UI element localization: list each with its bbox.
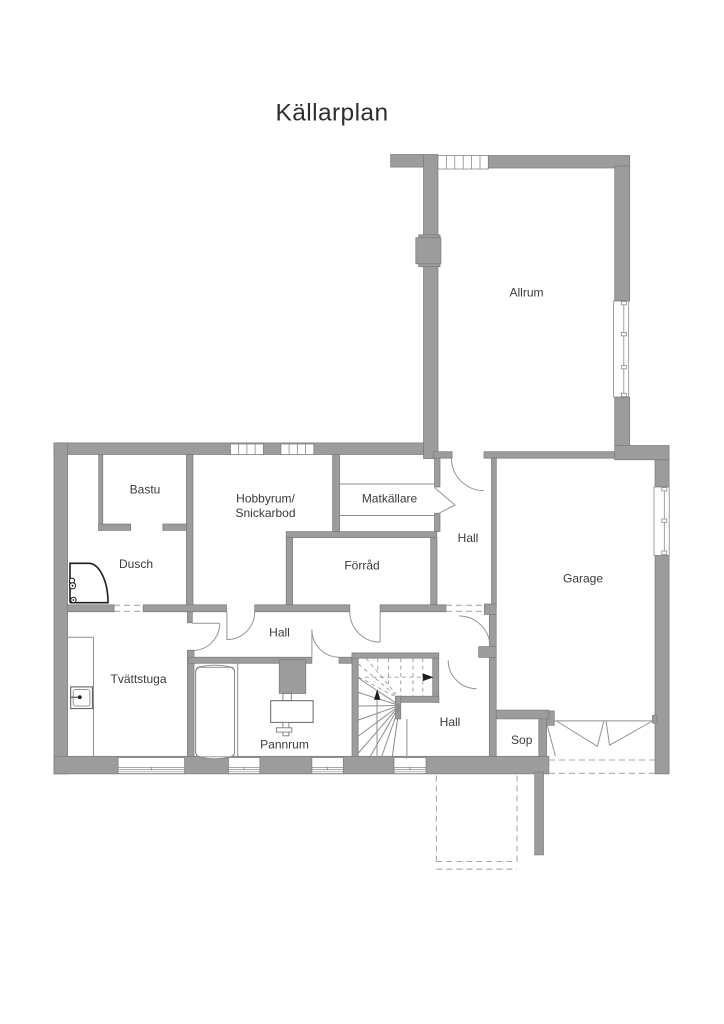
svg-text:Allrum: Allrum [509,286,543,300]
svg-text:Garage: Garage [563,572,603,586]
svg-text:Snickarbod: Snickarbod [235,506,295,520]
svg-text:Pannrum: Pannrum [260,738,309,752]
svg-text:Hall: Hall [458,531,479,545]
svg-text:Tvättstuga: Tvättstuga [110,672,166,686]
svg-text:Matkällare: Matkällare [362,492,418,506]
svg-text:Förråd: Förråd [344,559,379,573]
svg-text:Sop: Sop [511,733,533,747]
svg-text:Hobbyrum/: Hobbyrum/ [236,492,295,506]
svg-text:Dusch: Dusch [119,557,153,571]
svg-text:Hall: Hall [269,626,290,640]
svg-text:Hall: Hall [440,715,461,729]
svg-text:Bastu: Bastu [130,483,161,497]
svg-text:Källarplan: Källarplan [276,100,389,127]
